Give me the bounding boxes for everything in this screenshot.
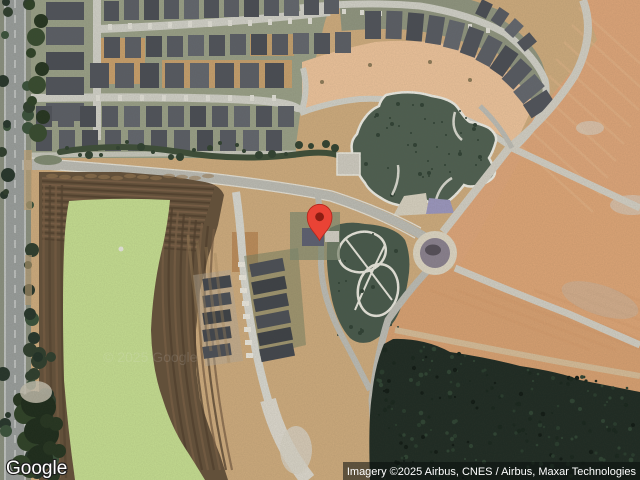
svg-text:Google: Google	[6, 458, 67, 479]
svg-text:Imagery ©2025 Airbus, CNES / A: Imagery ©2025 Airbus, CNES / Airbus, Max…	[347, 466, 637, 478]
